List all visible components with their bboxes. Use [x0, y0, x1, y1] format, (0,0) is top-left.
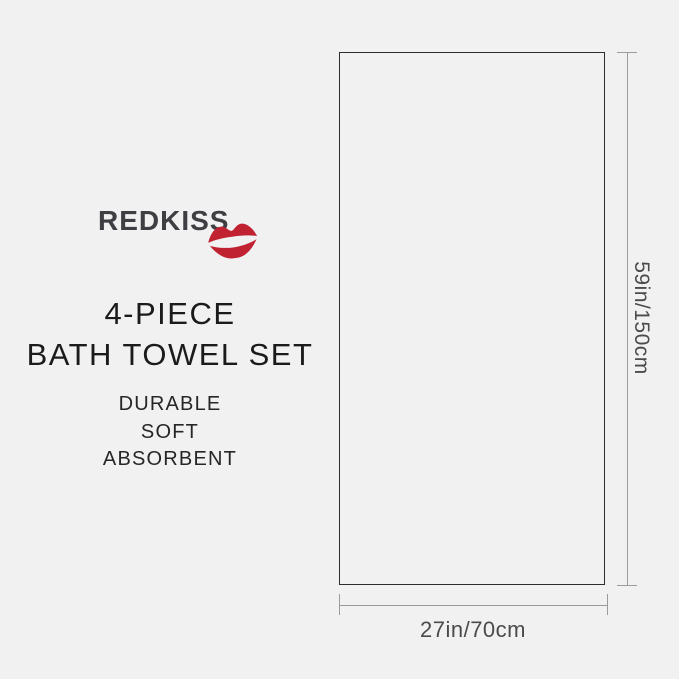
feature-durable: DURABLE — [20, 391, 320, 419]
height-dimension-label: 59in/150cm — [629, 261, 653, 375]
width-dimension-line — [339, 594, 608, 615]
product-infographic: REDKISS 4-PIECE BATH TOWEL SET DURABLE S… — [0, 0, 679, 679]
feature-absorbent: ABSORBENT — [20, 446, 320, 474]
title-line-1: 4-PIECE — [20, 293, 320, 334]
product-title: 4-PIECE BATH TOWEL SET — [20, 293, 320, 375]
feature-list: DURABLE SOFT ABSORBENT — [20, 391, 320, 474]
title-line-2: BATH TOWEL SET — [20, 334, 320, 375]
towel-outline — [339, 52, 605, 585]
width-dimension-label: 27in/70cm — [420, 617, 526, 643]
feature-soft: SOFT — [20, 419, 320, 447]
lipstick-kiss-icon — [203, 215, 263, 267]
